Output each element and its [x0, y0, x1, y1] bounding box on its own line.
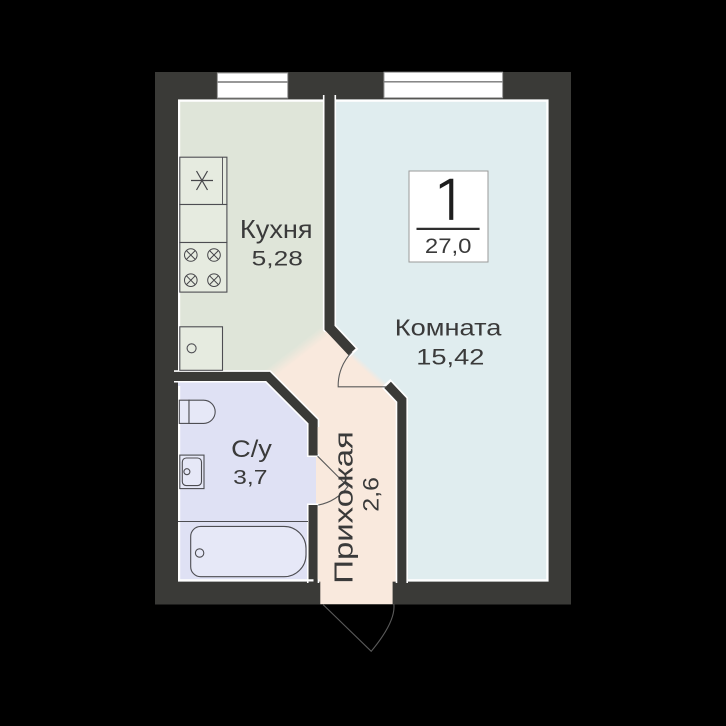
svg-text:3,7: 3,7 [233, 466, 267, 489]
svg-text:Кухня: Кухня [240, 214, 313, 244]
svg-text:С/у: С/у [231, 436, 273, 463]
svg-text:5,28: 5,28 [252, 246, 303, 270]
svg-text:27,0: 27,0 [425, 235, 472, 258]
svg-text:Прихожая: Прихожая [330, 431, 358, 584]
svg-text:2,6: 2,6 [359, 477, 384, 512]
svg-text:15,42: 15,42 [416, 344, 484, 369]
svg-text:Комната: Комната [395, 314, 502, 340]
